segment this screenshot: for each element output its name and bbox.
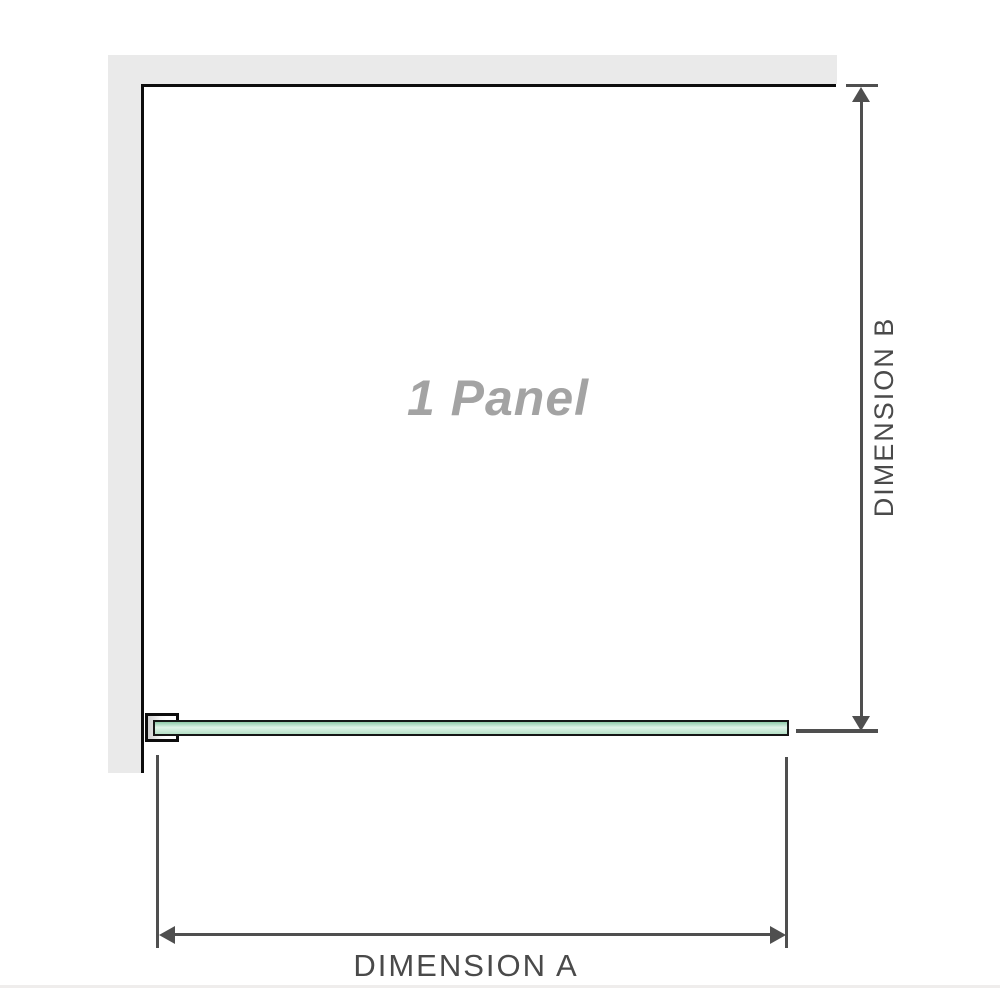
dimension-a-line [172, 933, 773, 936]
panel-count-label: 1 Panel [298, 366, 698, 430]
wall-top [108, 55, 837, 84]
dimension-a-label: DIMENSION A [266, 946, 666, 986]
arrow-up-icon [852, 87, 870, 102]
bottom-divider [0, 985, 1000, 988]
enclosure-top-edge [141, 84, 836, 87]
shower-panel-diagram: 1 Panel DIMENSION B DIMENSION A [0, 0, 1000, 1000]
enclosure-left-edge [141, 84, 144, 773]
arrow-right-icon [770, 926, 786, 944]
arrow-left-icon [159, 926, 175, 944]
dimension-a-left-extension-line [156, 755, 159, 948]
arrow-down-icon [852, 716, 870, 731]
dimension-b-line [860, 100, 863, 718]
wall-left [108, 55, 141, 773]
dimension-a-right-extension-line [785, 757, 788, 948]
glass-panel [153, 720, 789, 736]
dimension-b-label: DIMENSION B [868, 267, 900, 567]
